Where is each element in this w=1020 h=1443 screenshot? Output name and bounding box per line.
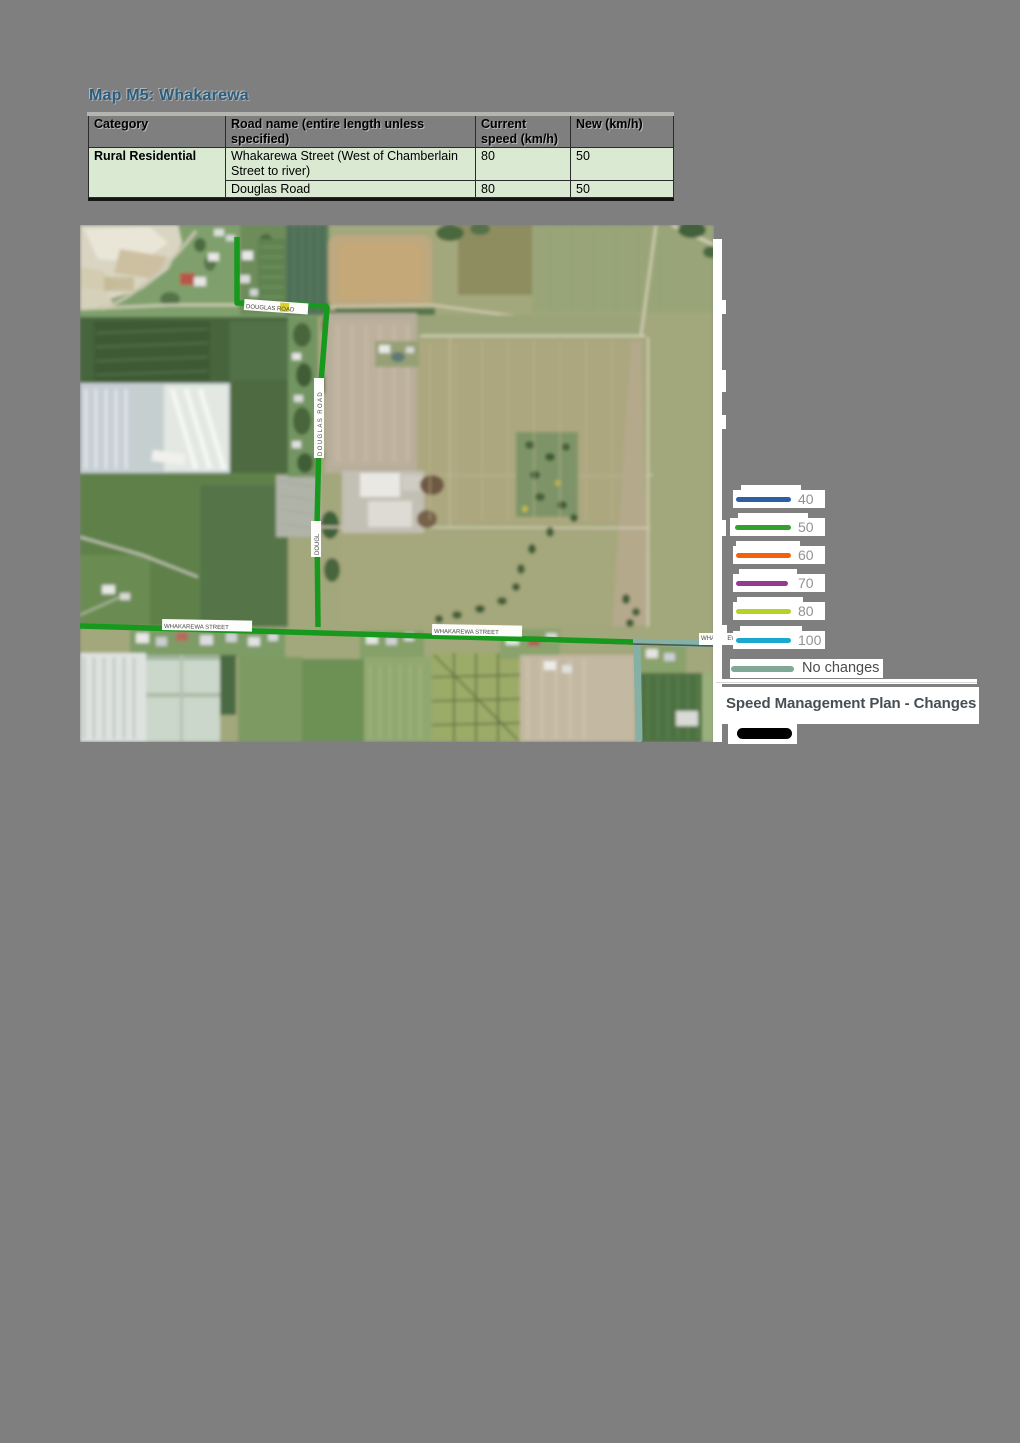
svg-text:DOUGLAS ROAD: DOUGLAS ROAD [318,391,324,456]
svg-text:WHAKAREWA STREET: WHAKAREWA STREET [164,624,229,631]
svg-text:DOUGL: DOUGL [315,533,321,555]
svg-text:WHAKAREWA STREET: WHAKAREWA STREET [434,629,499,636]
